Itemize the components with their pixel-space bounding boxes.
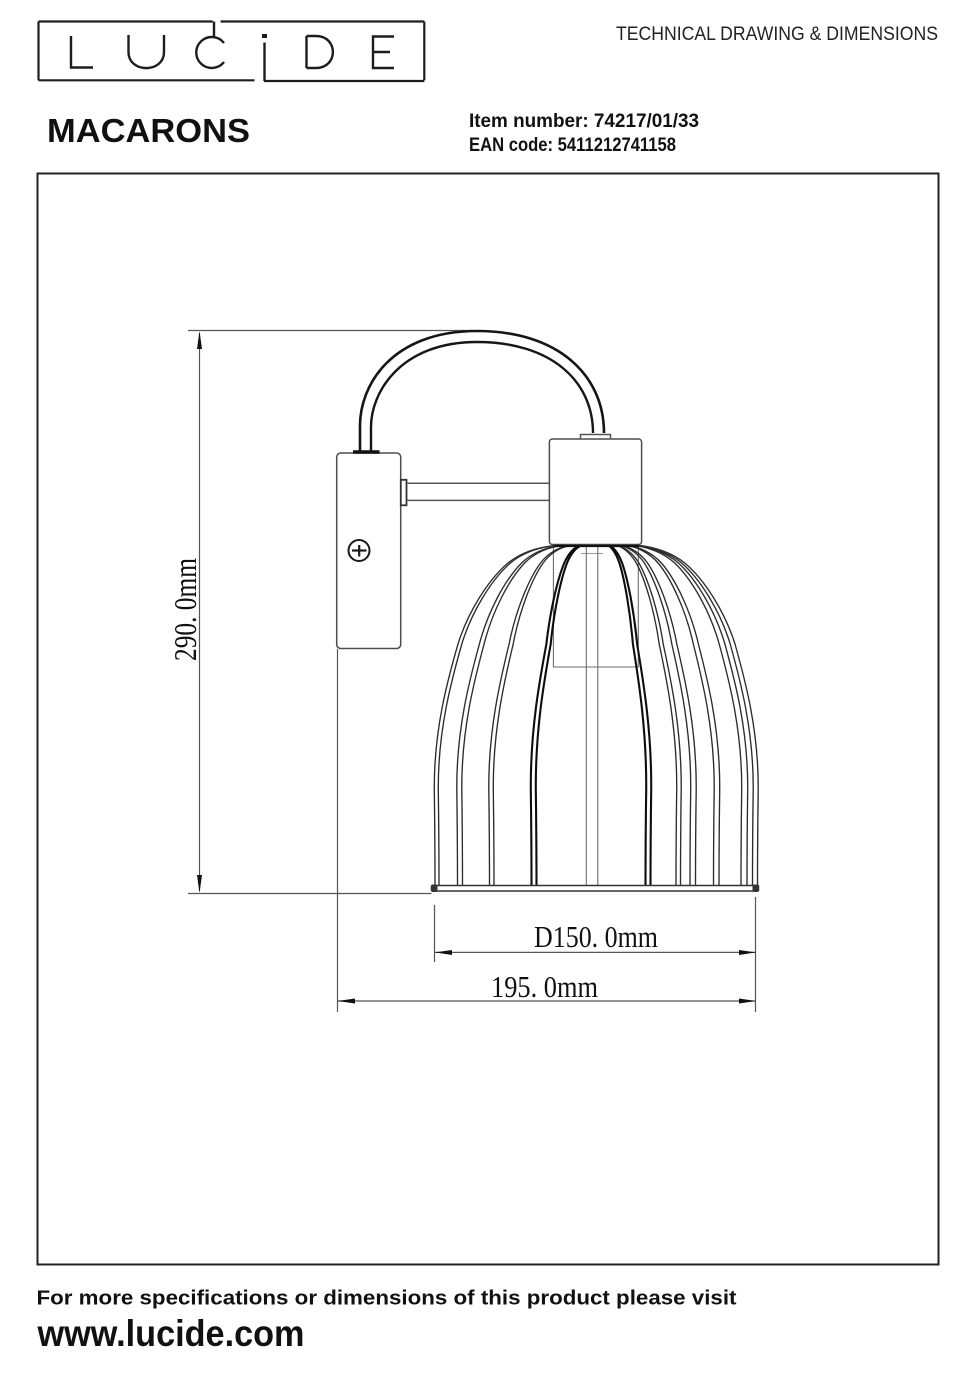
- svg-text:For more specifications or dim: For more specifications or dimensions of…: [37, 1287, 737, 1310]
- svg-text:290. 0mm: 290. 0mm: [167, 558, 203, 661]
- svg-text:195. 0mm: 195. 0mm: [491, 969, 598, 1004]
- svg-text:Item number: 74217/01/33: Item number: 74217/01/33: [469, 111, 699, 132]
- svg-text:MACARONS: MACARONS: [47, 112, 250, 149]
- svg-text:D150. 0mm: D150. 0mm: [534, 919, 658, 954]
- svg-text:EAN code: 5411212741158: EAN code: 5411212741158: [469, 135, 676, 156]
- svg-text:TECHNICAL DRAWING & DIMENSIONS: TECHNICAL DRAWING & DIMENSIONS: [616, 24, 938, 45]
- svg-text:www.lucide.com: www.lucide.com: [37, 1313, 305, 1354]
